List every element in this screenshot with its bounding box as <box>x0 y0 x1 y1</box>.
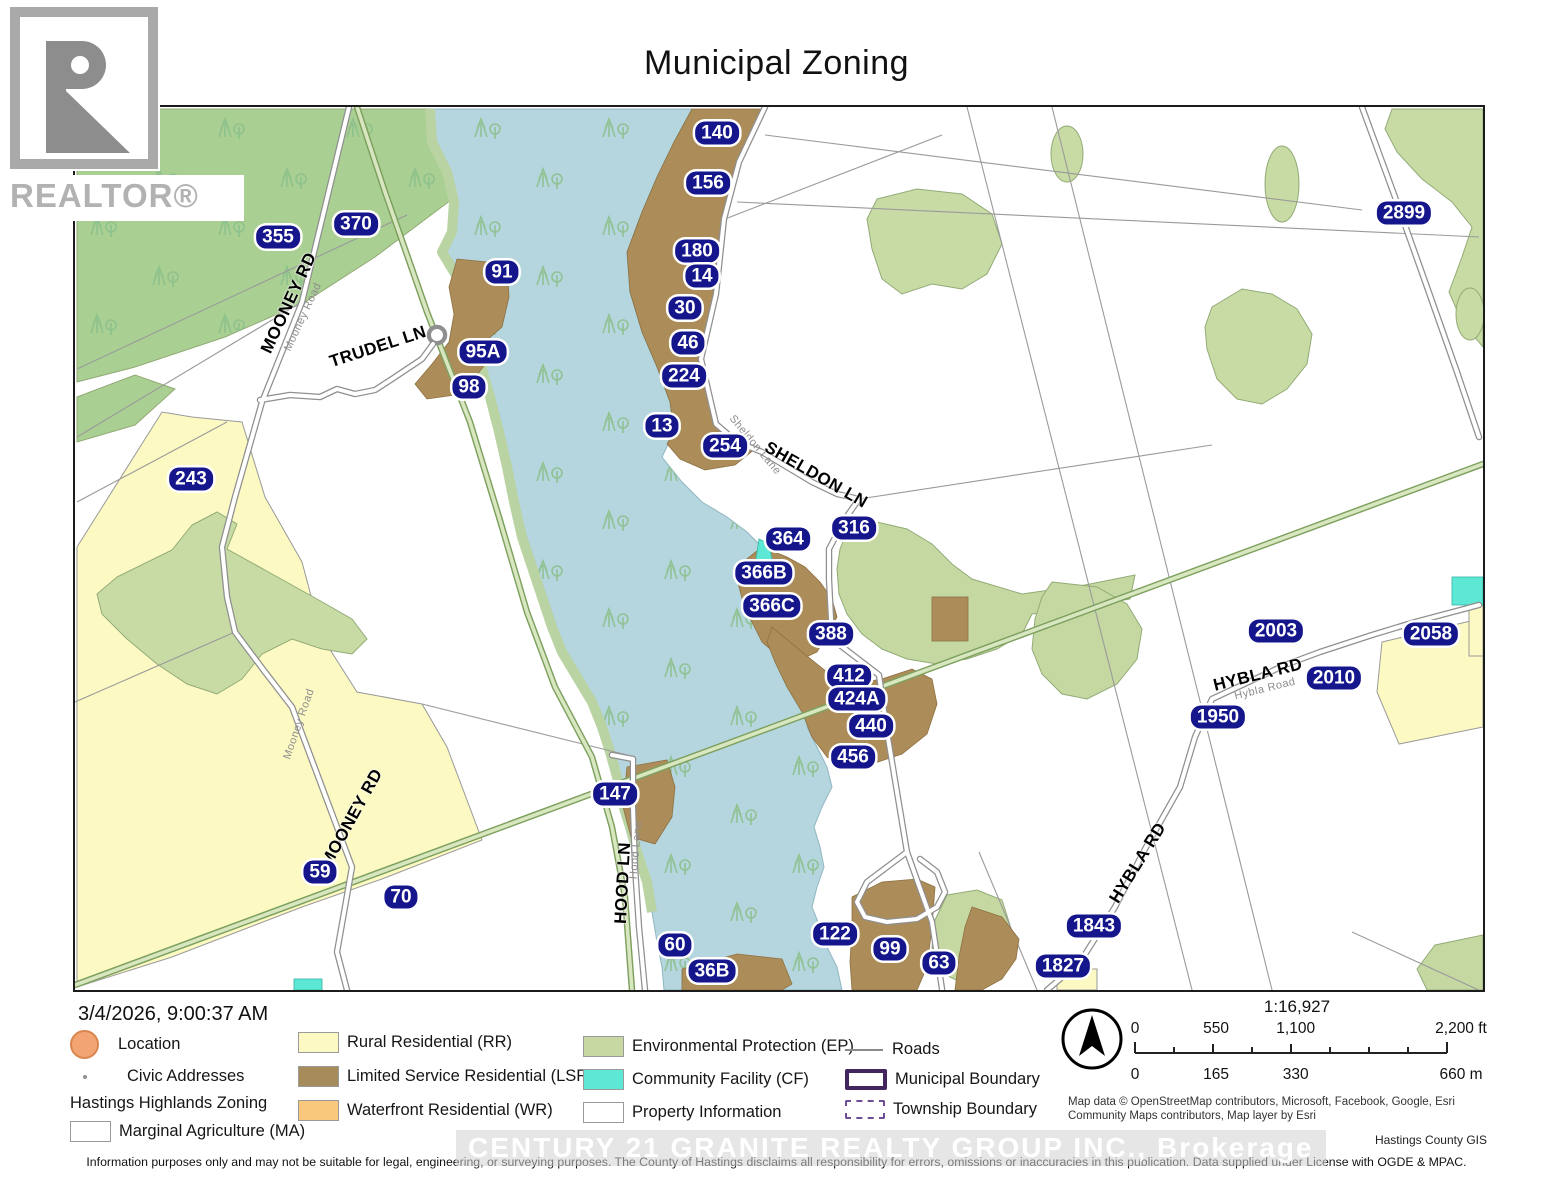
municipal-boundary-icon <box>845 1069 887 1090</box>
scale-tick-label: 330 <box>1283 1066 1309 1084</box>
address-badge-70[interactable]: 70 <box>384 886 417 909</box>
legend-item-township-boundary: Township Boundary <box>845 1100 1040 1119</box>
address-badge-243[interactable]: 243 <box>169 468 213 491</box>
legend-label: Township Boundary <box>893 1100 1037 1119</box>
address-badge-370[interactable]: 370 <box>334 213 378 236</box>
legend-label: Roads <box>892 1040 940 1059</box>
zone-swatch-icon <box>583 1036 624 1057</box>
civic-address-dot-icon <box>83 1075 87 1079</box>
address-badge-91[interactable]: 91 <box>485 261 518 284</box>
page-title: Municipal Zoning <box>0 44 1553 83</box>
road-line-icon <box>845 1049 883 1051</box>
address-badge-224[interactable]: 224 <box>662 365 706 388</box>
map-footer: 3/4/2026, 9:00:37 AM LocationCivic Addre… <box>0 992 1553 1200</box>
address-badge-60[interactable]: 60 <box>658 934 691 957</box>
legend-label: Waterfront Residential (WR) <box>347 1101 553 1120</box>
address-badge-366B[interactable]: 366B <box>735 562 792 585</box>
realtor-logo-mark <box>8 5 160 171</box>
legend-item-community-facility-cf-: Community Facility (CF) <box>583 1069 854 1090</box>
legend-label: Municipal Boundary <box>895 1070 1040 1089</box>
legend-item-hastings-highlands-zoning: Hastings Highlands Zoning <box>70 1094 305 1113</box>
zone-swatch-icon <box>298 1032 339 1053</box>
legend-item-rural-residential-rr-: Rural Residential (RR) <box>298 1032 594 1053</box>
address-badge-99[interactable]: 99 <box>873 938 906 961</box>
address-badge-30[interactable]: 30 <box>668 297 701 320</box>
scale-tick-label: 2,200 ft <box>1435 1020 1487 1038</box>
address-badge-147[interactable]: 147 <box>593 783 637 806</box>
address-badge-2058[interactable]: 2058 <box>1404 623 1458 646</box>
legend-item-roads: Roads <box>845 1040 1040 1059</box>
address-badge-122[interactable]: 122 <box>813 923 857 946</box>
location-icon <box>70 1030 99 1059</box>
scale-ratio: 1:16,927 <box>1232 997 1362 1017</box>
address-badge-364[interactable]: 364 <box>766 528 810 551</box>
zone-swatch-icon <box>298 1100 339 1121</box>
zone-swatch-icon <box>583 1102 624 1123</box>
address-badge-254[interactable]: 254 <box>703 435 747 458</box>
address-badge-1827[interactable]: 1827 <box>1036 955 1090 978</box>
address-badge-1843[interactable]: 1843 <box>1067 915 1121 938</box>
legend-column-residential: Rural Residential (RR)Limited Service Re… <box>298 1032 594 1121</box>
township-boundary-icon <box>845 1100 885 1119</box>
realtor-logo-text: REALTOR® <box>8 175 244 221</box>
address-badge-140[interactable]: 140 <box>695 122 739 145</box>
legend-label: Community Facility (CF) <box>632 1070 809 1089</box>
address-badge-98[interactable]: 98 <box>452 376 485 399</box>
scale-tick-label: 550 <box>1203 1020 1229 1038</box>
legend-item-marginal-agriculture-ma-: Marginal Agriculture (MA) <box>70 1121 305 1142</box>
legend-item-municipal-boundary: Municipal Boundary <box>845 1069 1040 1090</box>
address-badge-180[interactable]: 180 <box>675 240 719 263</box>
address-badge-14[interactable]: 14 <box>685 265 718 288</box>
legend-item-civic-addresses: Civic Addresses <box>70 1067 305 1086</box>
map-attribution: Map data © OpenStreetMap contributors, M… <box>1068 1095 1480 1124</box>
north-arrow-icon <box>1059 1006 1125 1072</box>
address-badge-355[interactable]: 355 <box>256 226 300 249</box>
legend-label: Location <box>118 1035 180 1054</box>
legend-label: Civic Addresses <box>127 1067 244 1086</box>
legend-label: Marginal Agriculture (MA) <box>119 1122 305 1141</box>
address-badge-156[interactable]: 156 <box>686 172 730 195</box>
scale-tick-label: 165 <box>1203 1066 1229 1084</box>
address-badge-424A[interactable]: 424A <box>828 688 885 711</box>
address-badge-366C[interactable]: 366C <box>743 595 800 618</box>
address-badge-2010[interactable]: 2010 <box>1307 667 1361 690</box>
gis-credit: Hastings County GIS <box>1375 1133 1487 1147</box>
legend-label: Property Information <box>632 1103 781 1122</box>
address-badge-59[interactable]: 59 <box>303 861 336 884</box>
scale-tick-label: 1,100 <box>1276 1020 1315 1038</box>
address-badge-440[interactable]: 440 <box>849 715 893 738</box>
timestamp: 3/4/2026, 9:00:37 AM <box>78 1003 268 1026</box>
address-badge-13[interactable]: 13 <box>645 415 678 438</box>
zone-swatch-icon <box>298 1066 339 1087</box>
address-badge-46[interactable]: 46 <box>671 332 704 355</box>
address-badge-63[interactable]: 63 <box>922 952 955 975</box>
scale-tick-label: 0 <box>1131 1066 1140 1084</box>
address-badge-456[interactable]: 456 <box>831 746 875 769</box>
scale-tick-label: 0 <box>1131 1020 1140 1038</box>
legend-label: Hastings Highlands Zoning <box>70 1094 267 1113</box>
legend-item-location: Location <box>70 1030 305 1059</box>
address-badge-36B[interactable]: 36B <box>689 960 736 983</box>
legend-label: Environmental Protection (EP) <box>632 1037 854 1056</box>
scale-bar <box>1131 1042 1461 1064</box>
legend-column-location: LocationCivic AddressesHastings Highland… <box>70 1030 305 1142</box>
address-badge-316[interactable]: 316 <box>832 517 876 540</box>
zone-swatch-icon <box>70 1121 111 1142</box>
brokerage-watermark: CENTURY 21 GRANITE REALTY GROUP INC., Br… <box>456 1130 1326 1166</box>
address-badge-1950[interactable]: 1950 <box>1191 706 1245 729</box>
address-badge-412[interactable]: 412 <box>827 665 871 688</box>
legend-label: Limited Service Residential (LSR) <box>347 1067 594 1086</box>
address-badge-2899[interactable]: 2899 <box>1377 202 1431 225</box>
zone-swatch-icon <box>583 1069 624 1090</box>
address-badge-95A[interactable]: 95A <box>460 341 507 364</box>
legend-column-boundaries: RoadsMunicipal BoundaryTownship Boundary <box>845 1040 1040 1119</box>
legend-item-waterfront-residential-wr-: Waterfront Residential (WR) <box>298 1100 594 1121</box>
legend-label: Rural Residential (RR) <box>347 1033 512 1052</box>
legend-item-environmental-protection-ep-: Environmental Protection (EP) <box>583 1036 854 1057</box>
address-badge-2003[interactable]: 2003 <box>1249 620 1303 643</box>
legend-column-environment: Environmental Protection (EP)Community F… <box>583 1036 854 1123</box>
legend-item-property-information: Property Information <box>583 1102 854 1123</box>
map-canvas[interactable]: 14015618014304622413254316364366B366C388… <box>73 105 1485 992</box>
realtor-logo: REALTOR® <box>8 5 160 171</box>
scale-tick-label: 660 m <box>1439 1066 1482 1084</box>
page: Municipal Zoning <box>0 0 1553 1200</box>
legend-item-limited-service-residential-lsr-: Limited Service Residential (LSR) <box>298 1066 594 1087</box>
address-badge-388[interactable]: 388 <box>809 623 853 646</box>
